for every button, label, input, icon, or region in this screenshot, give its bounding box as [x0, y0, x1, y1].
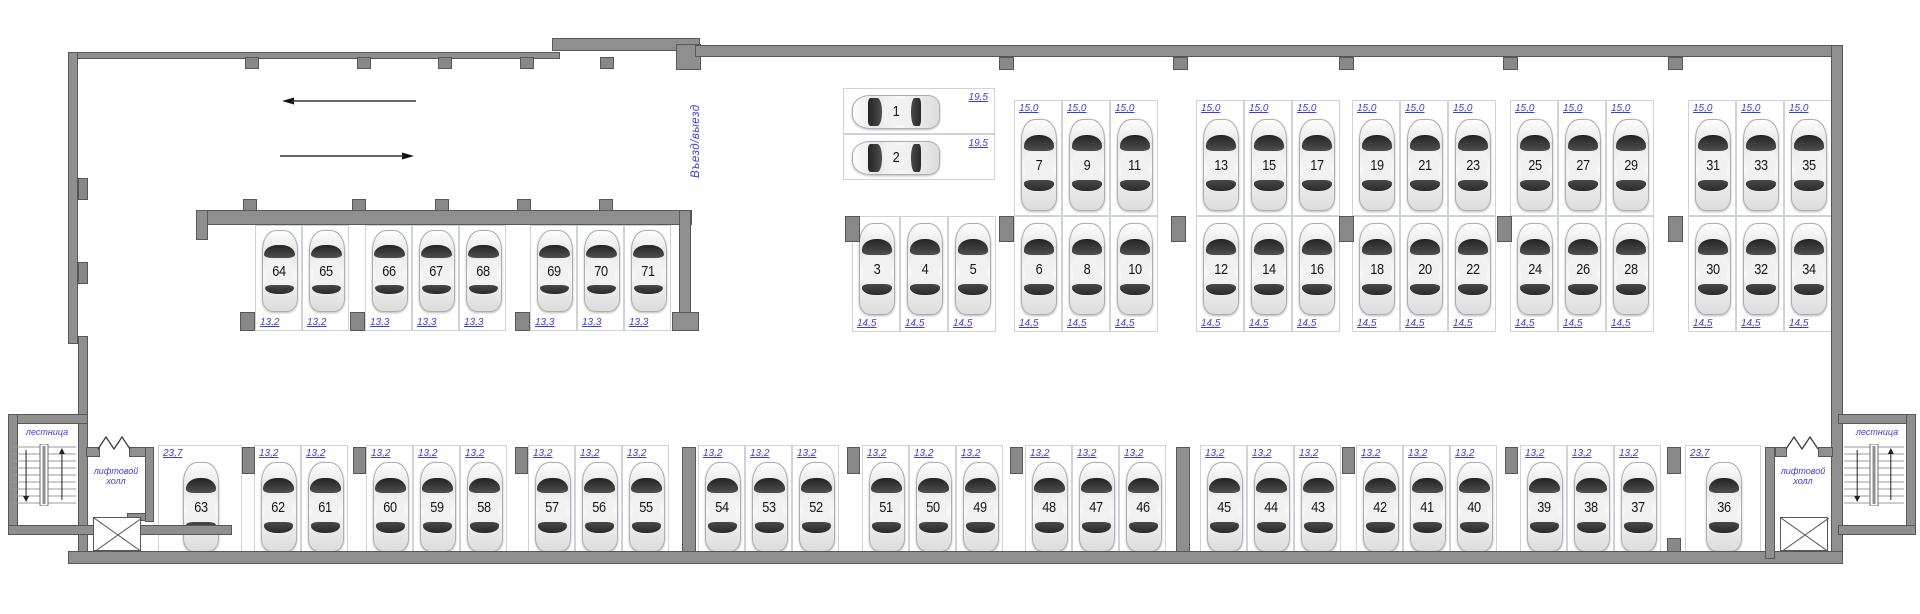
parking-spot-68[interactable]: 13,368	[459, 225, 506, 331]
car-roof: 21	[1411, 152, 1439, 178]
spot-number: 15	[1262, 157, 1276, 174]
spot-number: 64	[273, 263, 287, 280]
spot-area-link[interactable]: 14,5	[1067, 318, 1086, 329]
spot-area-link[interactable]: 15,0	[1693, 103, 1712, 114]
car-icon: 26	[1565, 223, 1601, 315]
parking-spot-58[interactable]: 13,258	[460, 445, 507, 555]
spot-number: 21	[1418, 157, 1432, 174]
parking-spot-57[interactable]: 13,257	[528, 445, 575, 555]
car-roof: 60	[377, 495, 405, 521]
parking-spot-39[interactable]: 13,239	[1520, 445, 1567, 555]
parking-spot-28[interactable]: 14,528	[1606, 216, 1654, 332]
parking-spot-40[interactable]: 13,240	[1450, 445, 1497, 555]
parking-spot-47[interactable]: 13,247	[1072, 445, 1119, 555]
spot-number: 59	[431, 499, 445, 516]
spot-area-link[interactable]: 15,0	[1249, 103, 1268, 114]
parking-spot-54[interactable]: 13,254	[698, 445, 745, 555]
wall-segment	[1765, 447, 1775, 559]
spot-number: 43	[1312, 499, 1326, 516]
spot-area-link[interactable]: 15,0	[1405, 103, 1424, 114]
car-roof: 43	[1305, 495, 1333, 521]
spot-area-link[interactable]: 13,2	[1525, 448, 1544, 459]
car-windshield	[1034, 478, 1065, 493]
car-windshield	[1529, 478, 1560, 493]
car-icon: 67	[419, 230, 455, 312]
spot-area-link[interactable]: 13,2	[1077, 448, 1096, 459]
spot-area-link[interactable]: 14,5	[1515, 318, 1534, 329]
car-roof: 26	[1569, 256, 1597, 282]
spot-area-link[interactable]: 14,5	[1611, 318, 1630, 329]
spot-area-link[interactable]: 14,5	[1201, 318, 1220, 329]
spot-area-link[interactable]: 13,3	[535, 317, 554, 328]
spot-number: 52	[810, 499, 824, 516]
car-icon: 10	[1117, 223, 1153, 315]
parking-spot-27[interactable]: 15,027	[1558, 100, 1606, 216]
car-windshield	[311, 245, 342, 259]
parking-spot-10[interactable]: 14,510	[1110, 216, 1158, 332]
car-roof: 44	[1258, 495, 1286, 521]
column-pillar	[240, 312, 255, 331]
car-rear-window	[1302, 284, 1331, 295]
car-icon: 68	[466, 230, 502, 312]
parking-spot-37[interactable]: 13,237	[1614, 445, 1661, 555]
car-rear-window	[587, 285, 616, 295]
spot-area-link[interactable]: 13,3	[629, 317, 648, 328]
car-roof: 29	[1617, 152, 1645, 178]
car-icon: 29	[1613, 119, 1649, 211]
spot-number: 54	[716, 499, 730, 516]
parking-spot-42[interactable]: 13,242	[1356, 445, 1403, 555]
spot-area-link[interactable]: 13,2	[627, 448, 646, 459]
wall-segment	[1831, 45, 1843, 558]
car-windshield	[1120, 239, 1151, 254]
spot-area-link[interactable]: 15,0	[1115, 103, 1134, 114]
parking-spot-6[interactable]: 14,56	[1014, 216, 1062, 332]
spot-area-link[interactable]: 15,0	[1297, 103, 1316, 114]
parking-spot-9[interactable]: 15,09	[1062, 100, 1110, 216]
spot-area-link[interactable]: 14,5	[1789, 318, 1808, 329]
parking-spot-59[interactable]: 13,259	[413, 445, 460, 555]
spot-number: 17	[1310, 157, 1324, 174]
parking-spot-13[interactable]: 15,013	[1196, 100, 1244, 216]
parking-spot-16[interactable]: 14,516	[1292, 216, 1340, 332]
wall-segment	[68, 551, 1843, 564]
wall-segment	[1176, 447, 1190, 552]
car-rear-window	[1254, 180, 1283, 191]
spot-area-link[interactable]: 23,7	[1690, 448, 1709, 459]
spot-area-link[interactable]: 14,5	[1741, 318, 1760, 329]
car-rear-window	[1120, 284, 1149, 295]
column-pillar	[999, 216, 1014, 242]
car-icon: 39	[1527, 462, 1563, 552]
spot-area-link[interactable]: 15,0	[1453, 103, 1472, 114]
car-rear-window	[1413, 522, 1442, 533]
spot-area-link[interactable]: 15,0	[1019, 103, 1038, 114]
car-rear-window	[1362, 180, 1391, 191]
parking-spot-21[interactable]: 15,021	[1400, 100, 1448, 216]
spot-area-link[interactable]: 13,2	[306, 448, 325, 459]
parking-spot-49[interactable]: 13,249	[956, 445, 1003, 555]
car-windshield	[1072, 239, 1103, 254]
car-icon: 57	[535, 462, 571, 552]
car-icon: 50	[916, 462, 952, 552]
spot-area-link[interactable]: 14,5	[1405, 318, 1424, 329]
column-pillar	[245, 57, 259, 69]
spot-area-link[interactable]: 13,2	[1572, 448, 1591, 459]
car-windshield	[862, 239, 893, 254]
car-rear-window	[1206, 284, 1235, 295]
parking-spot-33[interactable]: 15,033	[1736, 100, 1784, 216]
spot-number: 40	[1468, 499, 1482, 516]
parking-spot-66[interactable]: 13,366	[365, 225, 412, 331]
car-roof: 7	[1025, 152, 1053, 178]
wall-segment	[695, 45, 1843, 57]
car-rear-window	[1458, 284, 1487, 295]
spot-area-link[interactable]: 13,2	[1455, 448, 1474, 459]
spot-area-link[interactable]: 14,5	[1115, 318, 1134, 329]
parking-spot-52[interactable]: 13,252	[792, 445, 839, 555]
column-pillar	[353, 447, 366, 474]
parking-spot-53[interactable]: 13,253	[745, 445, 792, 555]
car-rear-window	[1366, 522, 1395, 533]
spot-area-link[interactable]: 15,0	[1201, 103, 1220, 114]
parking-spot-62[interactable]: 13,262	[254, 445, 301, 555]
parking-spot-45[interactable]: 13,245	[1200, 445, 1247, 555]
car-windshield	[1746, 239, 1777, 254]
car-icon: 21	[1407, 119, 1443, 211]
car-rear-window	[1254, 284, 1283, 295]
parking-spot-15[interactable]: 15,015	[1244, 100, 1292, 216]
spot-area-link[interactable]: 13,2	[533, 448, 552, 459]
spot-area-link[interactable]: 13,2	[1299, 448, 1318, 459]
car-icon: 54	[705, 462, 741, 552]
parking-spot-20[interactable]: 14,520	[1400, 216, 1448, 332]
car-rear-window	[1698, 180, 1727, 191]
spot-area-link[interactable]: 13,2	[465, 448, 484, 459]
spot-number: 35	[1802, 157, 1816, 174]
spot-number: 9	[1084, 157, 1091, 174]
spot-area-link[interactable]: 15,0	[1741, 103, 1760, 114]
car-icon: 37	[1621, 462, 1657, 552]
parking-spot-8[interactable]: 14,58	[1062, 216, 1110, 332]
car-rear-window	[265, 285, 294, 295]
spot-area-link[interactable]: 13,2	[307, 317, 326, 328]
car-roof: 17	[1303, 152, 1331, 178]
column-pillar	[1173, 57, 1188, 70]
car-icon: 19	[1359, 119, 1395, 211]
spot-number: 3	[874, 261, 881, 278]
parking-spot-17[interactable]: 15,017	[1292, 100, 1340, 216]
parking-spot-69[interactable]: 13,369	[530, 225, 577, 331]
spot-area-link[interactable]: 13,2	[580, 448, 599, 459]
parking-spot-35[interactable]: 15,035	[1784, 100, 1832, 216]
car-roof: 5	[959, 256, 987, 282]
spot-number: 31	[1706, 157, 1720, 174]
car-icon: 65	[309, 230, 345, 312]
parking-spot-34[interactable]: 14,534	[1784, 216, 1832, 332]
car-windshield	[1698, 239, 1729, 254]
spot-area-link[interactable]: 23,7	[163, 448, 182, 459]
car-rear-window	[264, 522, 293, 533]
parking-spot-36[interactable]: 23,736	[1685, 445, 1761, 555]
spot-number: 14	[1262, 261, 1276, 278]
spot-area-link[interactable]: 13,2	[703, 448, 722, 459]
column-pillar	[1503, 57, 1518, 70]
car-rear-window	[1698, 284, 1727, 295]
wall-segment	[8, 414, 88, 424]
spot-area-link[interactable]: 13,3	[582, 317, 601, 328]
spot-area-link[interactable]: 13,2	[1361, 448, 1380, 459]
spot-number: 5	[970, 261, 977, 278]
parking-spot-7[interactable]: 15,07	[1014, 100, 1062, 216]
parking-spot-67[interactable]: 13,367	[412, 225, 459, 331]
elevator-shaft-left	[93, 517, 141, 551]
spot-area-link[interactable]: 14,5	[1297, 318, 1316, 329]
car-roof: 20	[1411, 256, 1439, 282]
car-roof: 8	[1073, 256, 1101, 282]
car-windshield	[1458, 135, 1489, 150]
spot-area-link[interactable]: 15,0	[1357, 103, 1376, 114]
parking-spot-60[interactable]: 13,260	[366, 445, 413, 555]
car-roof: 68	[470, 260, 498, 283]
car-windshield	[1206, 135, 1237, 150]
parking-spot-38[interactable]: 13,238	[1567, 445, 1614, 555]
car-icon: 43	[1301, 462, 1337, 552]
parking-spot-5[interactable]: 14,55	[948, 216, 996, 332]
car-icon: 52	[799, 462, 835, 552]
parking-spot-50[interactable]: 13,250	[909, 445, 956, 555]
parking-spot-30[interactable]: 14,530	[1688, 216, 1736, 332]
parking-spot-56[interactable]: 13,256	[575, 445, 622, 555]
spot-area-link[interactable]: 13,3	[370, 317, 389, 328]
spot-area-link[interactable]: 19,5	[969, 92, 988, 103]
spot-area-link[interactable]: 13,2	[1205, 448, 1224, 459]
spot-area-link[interactable]: 13,2	[750, 448, 769, 459]
car-rear-window	[910, 284, 939, 295]
parking-spot-1[interactable]: 19,51	[843, 88, 995, 134]
car-windshield	[1520, 135, 1551, 150]
car-icon: 62	[261, 462, 297, 552]
car-windshield	[1410, 135, 1441, 150]
car-icon: 25	[1517, 119, 1553, 211]
car-icon: 2	[852, 141, 940, 175]
wall-segment	[145, 447, 154, 522]
parking-spot-12[interactable]: 14,512	[1196, 216, 1244, 332]
car-icon: 46	[1126, 462, 1162, 552]
car-icon: 22	[1455, 223, 1491, 315]
spot-area-link[interactable]: 13,2	[259, 448, 278, 459]
column-pillar	[438, 57, 452, 69]
wall-segment	[679, 210, 691, 316]
spot-number: 61	[319, 499, 333, 516]
car-rear-window	[802, 522, 831, 533]
car-windshield	[422, 478, 453, 493]
spot-area-link[interactable]: 13,2	[961, 448, 980, 459]
spot-number: 26	[1576, 261, 1590, 278]
car-roof: 66	[376, 260, 404, 283]
spot-area-link[interactable]: 14,5	[1357, 318, 1376, 329]
spot-area-link[interactable]: 15,0	[1515, 103, 1534, 114]
parking-spot-55[interactable]: 13,255	[622, 445, 669, 555]
spot-area-link[interactable]: 14,5	[1019, 318, 1038, 329]
spot-number: 51	[880, 499, 894, 516]
wall-segment	[1838, 414, 1916, 424]
car-roof: 63	[187, 495, 215, 521]
spot-number: 13	[1214, 157, 1228, 174]
car-icon: 33	[1743, 119, 1779, 211]
spot-area-link[interactable]: 15,0	[1611, 103, 1630, 114]
car-rear-window	[1024, 284, 1053, 295]
spot-area-link[interactable]: 13,2	[1124, 448, 1143, 459]
parking-spot-11[interactable]: 15,011	[1110, 100, 1158, 216]
spot-area-link[interactable]: 13,2	[260, 317, 279, 328]
parking-spot-26[interactable]: 14,526	[1558, 216, 1606, 332]
car-roof: 15	[1255, 152, 1283, 178]
spot-area-link[interactable]: 13,2	[914, 448, 933, 459]
parking-spot-2[interactable]: 19,52	[843, 134, 995, 180]
parking-spot-4[interactable]: 14,54	[900, 216, 948, 332]
parking-spot-43[interactable]: 13,243	[1294, 445, 1341, 555]
car-rear-window	[1072, 180, 1101, 191]
parking-spot-25[interactable]: 15,025	[1510, 100, 1558, 216]
car-windshield	[910, 239, 941, 254]
parking-spot-29[interactable]: 15,029	[1606, 100, 1654, 216]
spot-area-link[interactable]: 13,3	[464, 317, 483, 328]
car-rear-window	[375, 285, 404, 295]
spot-area-link[interactable]: 14,5	[1453, 318, 1472, 329]
parking-spot-32[interactable]: 14,532	[1736, 216, 1784, 332]
car-windshield	[1458, 239, 1489, 254]
spot-area-link[interactable]: 13,2	[1252, 448, 1271, 459]
car-rear-window	[1530, 522, 1559, 533]
spot-area-link[interactable]: 14,5	[905, 318, 924, 329]
parking-spot-51[interactable]: 13,251	[862, 445, 909, 555]
parking-spot-19[interactable]: 15,019	[1352, 100, 1400, 216]
car-windshield	[1302, 135, 1333, 150]
column-pillar	[1342, 447, 1355, 474]
spot-area-link[interactable]: 13,2	[867, 448, 886, 459]
parking-spot-23[interactable]: 15,023	[1448, 100, 1496, 216]
parking-spot-46[interactable]: 13,246	[1119, 445, 1166, 555]
car-roof: 28	[1617, 256, 1645, 282]
car-rear-window	[1458, 180, 1487, 191]
car-rear-window	[1624, 522, 1653, 533]
car-rear-window	[1616, 284, 1645, 295]
car-rear-window	[1520, 180, 1549, 191]
car-icon: 17	[1299, 119, 1335, 211]
car-rear-window	[632, 522, 661, 533]
column-pillar	[1010, 447, 1023, 474]
spot-area-link[interactable]: 14,5	[1693, 318, 1712, 329]
spot-area-link[interactable]: 15,0	[1067, 103, 1086, 114]
car-icon: 15	[1251, 119, 1287, 211]
car-windshield	[468, 245, 499, 259]
parking-spot-41[interactable]: 13,241	[1403, 445, 1450, 555]
spot-area-link[interactable]: 13,2	[1619, 448, 1638, 459]
parking-floor-plan: Въезд/выезд лестница лестница лифтовой х…	[0, 0, 1920, 614]
car-icon: 4	[907, 223, 943, 315]
car-roof: 11	[1121, 152, 1149, 178]
car-icon: 40	[1457, 462, 1493, 552]
car-rear-window	[1082, 522, 1111, 533]
spot-area-link[interactable]: 13,2	[371, 448, 390, 459]
column-pillar	[599, 199, 613, 211]
parking-spot-71[interactable]: 13,371	[624, 225, 671, 331]
car-roof: 51	[873, 495, 901, 521]
spot-area-link[interactable]: 13,2	[1408, 448, 1427, 459]
parking-spot-14[interactable]: 14,514	[1244, 216, 1292, 332]
car-roof: 37	[1625, 495, 1653, 521]
spot-number: 25	[1528, 157, 1542, 174]
spot-number: 33	[1754, 157, 1768, 174]
spot-number: 63	[194, 499, 208, 516]
car-roof: 25	[1521, 152, 1549, 178]
spot-area-link[interactable]: 14,5	[857, 318, 876, 329]
car-roof: 69	[541, 260, 569, 283]
staircase-left	[12, 444, 76, 506]
car-windshield	[469, 478, 500, 493]
parking-spot-24[interactable]: 14,524	[1510, 216, 1558, 332]
spot-number: 32	[1754, 261, 1768, 278]
car-roof: 71	[635, 260, 663, 283]
parking-spot-18[interactable]: 14,518	[1352, 216, 1400, 332]
car-rear-window	[1520, 284, 1549, 295]
car-windshield	[868, 98, 883, 127]
wall-segment	[196, 210, 208, 240]
parking-spot-65[interactable]: 13,265	[302, 225, 349, 331]
car-icon: 24	[1517, 223, 1553, 315]
parking-spot-70[interactable]: 13,370	[577, 225, 624, 331]
spot-area-link[interactable]: 13,2	[418, 448, 437, 459]
spot-number: 42	[1374, 499, 1388, 516]
car-windshield	[421, 245, 452, 259]
parking-spot-44[interactable]: 13,244	[1247, 445, 1294, 555]
car-rear-window	[911, 144, 921, 172]
car-icon: 23	[1455, 119, 1491, 211]
spot-area-link[interactable]: 13,2	[1030, 448, 1049, 459]
parking-spot-48[interactable]: 13,248	[1025, 445, 1072, 555]
car-windshield	[584, 478, 615, 493]
car-icon: 55	[629, 462, 665, 552]
spot-number: 48	[1043, 499, 1057, 516]
spot-area-link[interactable]: 14,5	[953, 318, 972, 329]
spot-area-link[interactable]: 15,0	[1789, 103, 1808, 114]
parking-spot-61[interactable]: 13,261	[301, 445, 348, 555]
spot-area-link[interactable]: 13,2	[797, 448, 816, 459]
car-roof: 62	[265, 495, 293, 521]
parking-spot-22[interactable]: 14,522	[1448, 216, 1496, 332]
spot-area-link[interactable]: 19,5	[969, 138, 988, 149]
car-icon: 42	[1363, 462, 1399, 552]
parking-spot-63[interactable]: 23,763	[158, 445, 242, 555]
spot-area-link[interactable]: 15,0	[1563, 103, 1582, 114]
car-windshield	[633, 245, 664, 259]
car-rear-window	[1304, 522, 1333, 533]
lift-hall-right-label: лифтовой холл	[1776, 466, 1830, 487]
spot-area-link[interactable]: 14,5	[1249, 318, 1268, 329]
column-pillar	[242, 447, 255, 474]
car-windshield	[1072, 135, 1103, 150]
car-icon: 41	[1410, 462, 1446, 552]
car-roof: 61	[312, 495, 340, 521]
spot-area-link[interactable]: 13,3	[417, 317, 436, 328]
parking-spot-31[interactable]: 15,031	[1688, 100, 1736, 216]
column-pillar	[515, 447, 528, 474]
car-icon: 58	[467, 462, 503, 552]
parking-spot-64[interactable]: 13,264	[255, 225, 302, 331]
spot-area-link[interactable]: 14,5	[1563, 318, 1582, 329]
car-rear-window	[1302, 180, 1331, 191]
